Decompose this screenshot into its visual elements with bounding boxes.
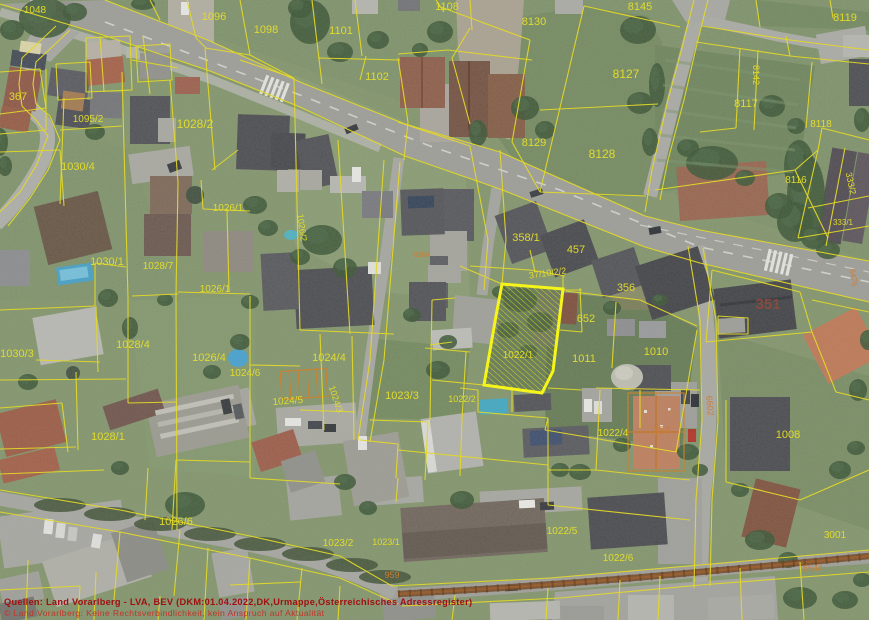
svg-text:Quellen: Land Vorarlberg - LVA: Quellen: Land Vorarlberg - LVA, BEV (DKM… [4,597,472,607]
svg-text:© Land Vorarlberg: Keine Recht: © Land Vorarlberg: Keine Rechtsverbindli… [4,608,325,618]
